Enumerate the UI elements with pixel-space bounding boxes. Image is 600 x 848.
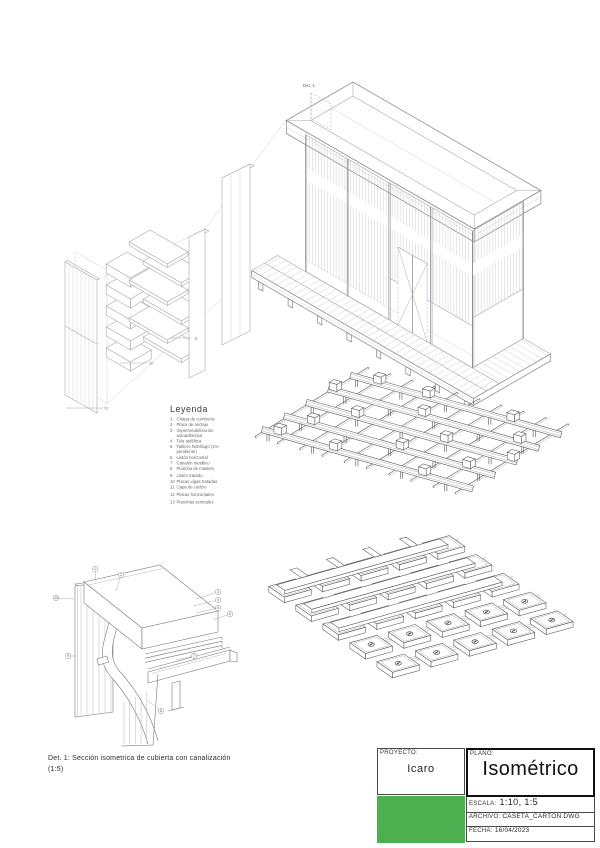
- legend-item: 1Chapa de cumbrera: [170, 417, 229, 422]
- svg-text:5: 5: [217, 606, 219, 610]
- plan-cell: PLANO: Isométrico: [466, 748, 595, 797]
- detail-caption-line1: Det. 1: Sección isometrica de cubierta c…: [48, 754, 278, 765]
- svg-text:13: 13: [54, 596, 58, 600]
- building-isometric: [252, 82, 551, 410]
- legend-item: 9Listón tratado: [170, 474, 229, 479]
- legend-item: 7Canalón metálico: [170, 461, 229, 466]
- legend-item-label: Impermeabilización autoadhesiva: [177, 428, 230, 438]
- legend-item: 12Placas horizontales: [170, 492, 229, 497]
- scale-cell: ESCALA: 1:10, 1:5: [466, 797, 595, 813]
- legend-item-label: Tablero hidrófugo (1% pendiente): [177, 445, 230, 455]
- plan-name: Isométrico: [468, 758, 593, 781]
- project-label: PROYECTO:: [378, 749, 464, 756]
- file-cell: ARCHIVO: CASETA_CARTON.DWG: [466, 813, 595, 827]
- legend-item-label: Chapa de cumbrera: [177, 417, 230, 422]
- file-label: ARCHIVO:: [467, 813, 500, 820]
- scale-value: 1:10, 1:5: [499, 797, 538, 807]
- legend: Leyenda 1Chapa de cumbrera2Placa de ancl…: [170, 404, 300, 594]
- date-cell: FECHA: 16/04/2023: [466, 827, 595, 842]
- legend-item-label: Tela asfáltica: [177, 439, 230, 444]
- file-value: CASETA_CARTON.DWG: [502, 813, 579, 820]
- svg-text:6: 6: [229, 612, 231, 616]
- legend-item-label: Placa de anclaje: [177, 423, 230, 428]
- legend-title: Leyenda: [170, 404, 300, 414]
- drawing-sheet: 111213 12345678913 Det. 1 Leyenda 1Chapa…: [0, 0, 600, 848]
- legend-item: 10Placas vigas tratadas: [170, 479, 229, 484]
- svg-text:7: 7: [193, 654, 195, 658]
- legend-item-label: Placas vigas tratadas: [177, 479, 230, 484]
- detail-callout-label: Det. 1: [303, 83, 315, 88]
- exploded-wall-panels: 111213: [65, 120, 286, 413]
- legend-item-label: Placas horizontales: [177, 492, 230, 497]
- project-cell: PROYECTO: Icaro: [377, 748, 465, 795]
- drawing-canvas: 111213 12345678913: [0, 0, 600, 848]
- legend-item-list: 1Chapa de cumbrera2Placa de anclaje3Impe…: [170, 417, 229, 505]
- svg-text:13: 13: [104, 407, 108, 411]
- legend-item: 3Impermeabilización autoadhesiva: [170, 428, 229, 438]
- legend-item: 4Tela asfáltica: [170, 439, 229, 444]
- legend-item: 5Tablero hidrófugo (1% pendiente): [170, 445, 229, 455]
- svg-text:9: 9: [67, 654, 69, 658]
- legend-item: 8Plancha de madera: [170, 467, 229, 472]
- logo-area: [377, 796, 465, 843]
- detail-caption-line2: (1:5): [48, 765, 278, 776]
- legend-item: 6Listón horizontal: [170, 455, 229, 460]
- plan-label: PLANO:: [468, 750, 593, 757]
- legend-item: 2Placa de anclaje: [170, 423, 229, 428]
- svg-text:1: 1: [94, 567, 96, 571]
- scale-label: ESCALA:: [467, 800, 496, 807]
- svg-text:8: 8: [160, 709, 162, 713]
- legend-item-label: Planchas verticales: [177, 500, 230, 505]
- legend-item-label: Plancha de madera: [177, 467, 230, 472]
- legend-item-label: Canalón metálico: [177, 461, 230, 466]
- legend-item-label: Listón tratado: [177, 474, 230, 479]
- foundation-isometric: [269, 536, 573, 678]
- detail-caption: Det. 1: Sección isometrica de cubierta c…: [48, 754, 278, 776]
- legend-item-label: Capa de cartón: [177, 485, 230, 490]
- date-label: FECHA:: [467, 827, 493, 834]
- svg-text:12: 12: [149, 362, 153, 366]
- svg-text:11: 11: [194, 337, 198, 341]
- legend-item: 11Capa de cartón: [170, 485, 229, 490]
- date-value: 16/04/2023: [495, 827, 530, 834]
- roof-framing-isometric: [255, 367, 569, 494]
- svg-text:4: 4: [217, 598, 219, 602]
- legend-item-label: Listón horizontal: [177, 455, 230, 460]
- title-block: PROYECTO: Icaro PLANO: Isométrico ESCALA…: [377, 748, 596, 845]
- project-name: Icaro: [378, 763, 464, 775]
- svg-text:2: 2: [120, 573, 122, 577]
- legend-item: 13Planchas verticales: [170, 500, 229, 505]
